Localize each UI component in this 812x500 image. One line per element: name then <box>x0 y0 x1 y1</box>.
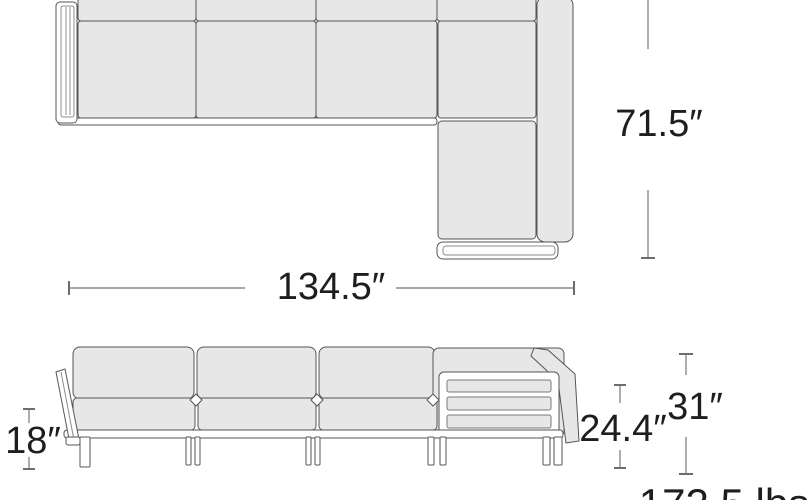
depth-label: 71.5″ <box>615 103 702 145</box>
front-leg <box>186 437 191 465</box>
sofa-top-view <box>56 0 573 259</box>
front-leg <box>554 437 562 465</box>
top-seat-cushion-3 <box>316 21 437 118</box>
front-back-cushion-1 <box>73 347 194 399</box>
front-seat-cushion-1 <box>73 398 195 430</box>
front-rail <box>64 430 563 438</box>
seat-height-label: 18″ <box>5 420 61 462</box>
front-seat-cushion-2 <box>198 398 316 430</box>
top-chaise-cushion <box>438 121 536 239</box>
front-leg <box>195 437 200 465</box>
front-left-arm-foot <box>66 437 80 445</box>
top-chaise-base <box>437 242 558 259</box>
front-leg <box>306 437 311 465</box>
arm-height-label: 24.4″ <box>579 408 666 450</box>
front-slat-1 <box>447 380 551 392</box>
top-back-cushion-3 <box>316 0 437 21</box>
front-leg <box>315 437 320 465</box>
top-back-cushion-2 <box>196 0 316 21</box>
sofa-front-view <box>56 347 579 467</box>
top-front-rail <box>58 118 437 125</box>
front-leg <box>80 437 90 467</box>
front-back-cushion-3 <box>319 347 435 399</box>
front-leg <box>428 437 434 465</box>
front-back-cushion-2 <box>197 347 316 399</box>
overall-height-label: 31″ <box>667 386 723 428</box>
dimension-diagram: 71.5″ 134.5″ 18″ 24.4″ 31″ 172.5 lbs <box>0 0 812 500</box>
top-back-cushion-corner <box>437 0 536 21</box>
front-slat-3 <box>447 415 551 428</box>
front-leg <box>543 437 550 465</box>
top-seat-cushion-2 <box>196 21 316 118</box>
top-corner-seat <box>438 21 536 118</box>
front-leg <box>440 437 446 465</box>
front-seat-cushion-3 <box>319 398 437 430</box>
overall-width-label: 134.5″ <box>277 266 386 308</box>
top-right-arm <box>537 0 573 242</box>
weight-label: 172.5 lbs <box>639 480 809 500</box>
diagram-canvas: 71.5″ 134.5″ 18″ 24.4″ 31″ 172.5 lbs <box>0 0 812 500</box>
top-seat-cushion-1 <box>78 21 196 118</box>
front-slat-2 <box>447 397 551 410</box>
top-back-cushion-1 <box>78 0 196 21</box>
